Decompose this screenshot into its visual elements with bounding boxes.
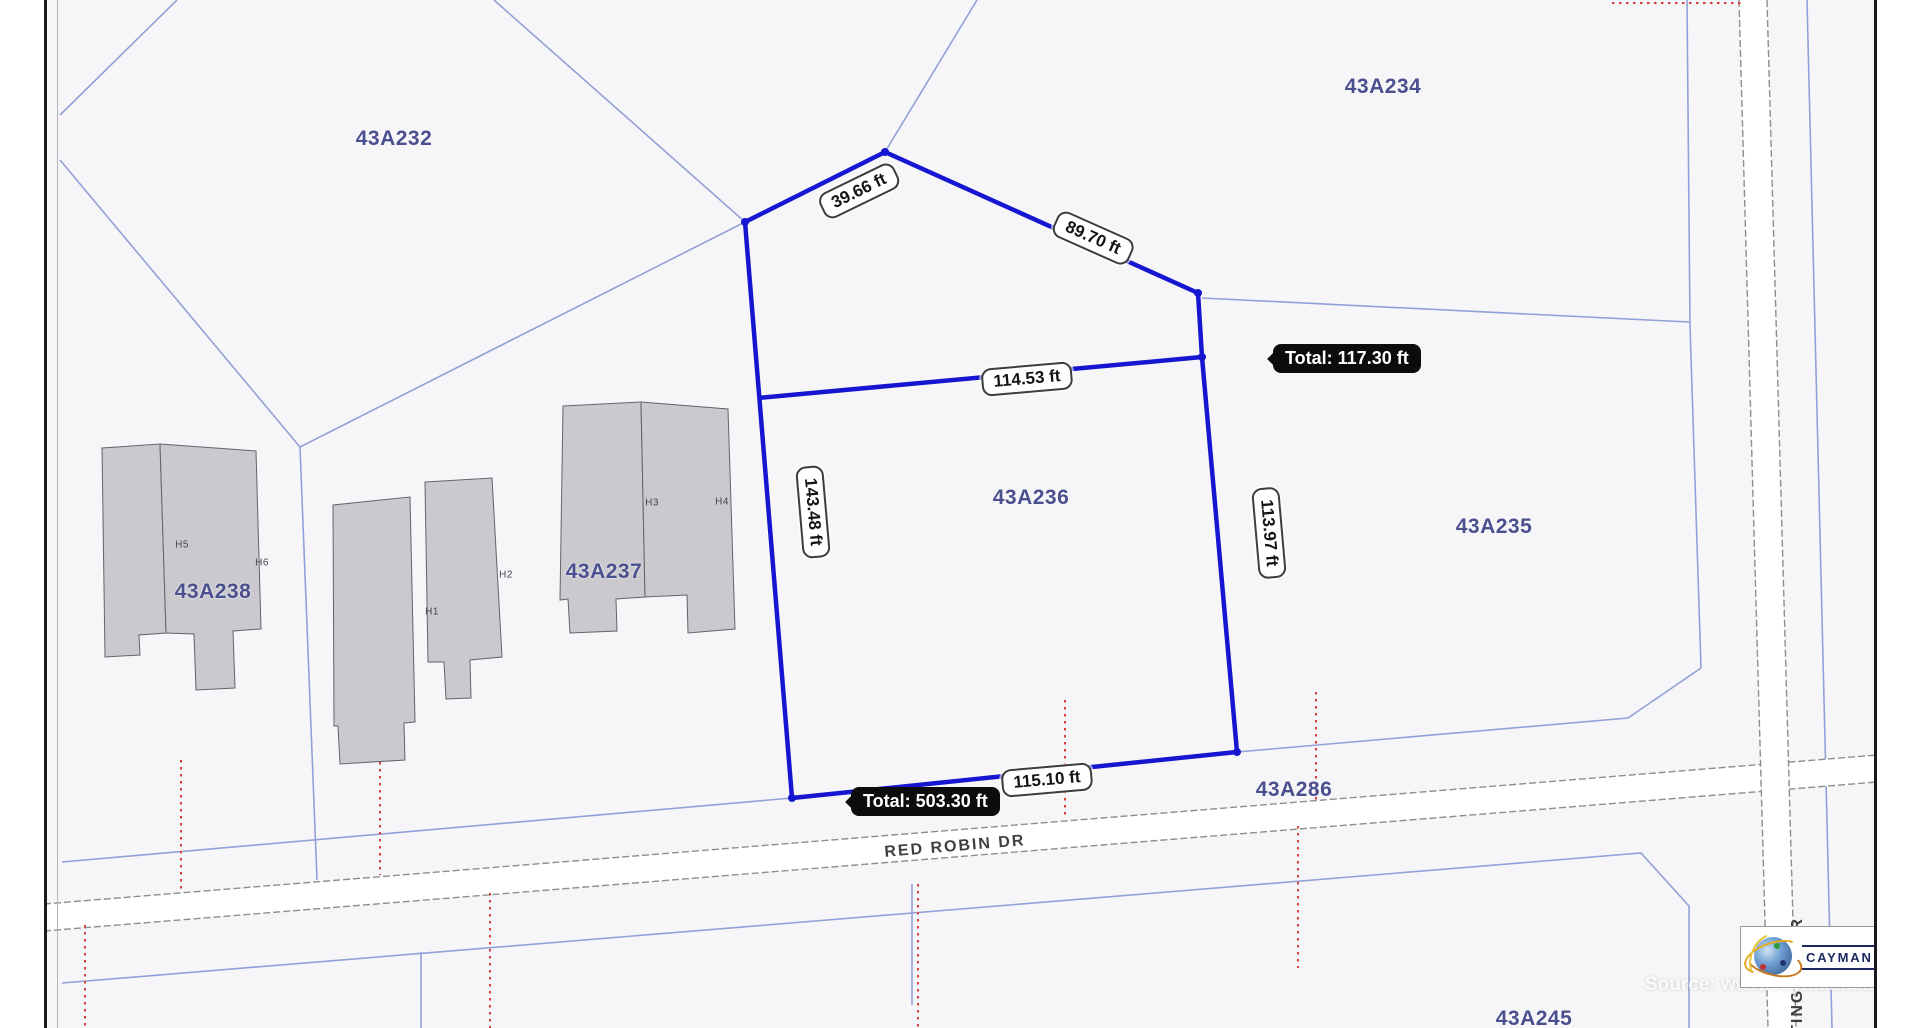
parcel-label-43A286: 43A286 [1256,778,1333,802]
building-label-h5: H5 [175,540,189,551]
total-callout-503-30: Total: 503.30 ft [851,787,1000,816]
road-nightingale-dr [1739,0,1796,1028]
map-border-right [1874,0,1877,1028]
parcel-label-43A235: 43A235 [1456,515,1533,539]
parcel-label-43A245: 43A245 [1496,1007,1573,1028]
cadastral-map-viewer: { "parcels": [ {"id": "43A232"}, {"id": … [0,0,1920,1028]
parcel-label-43A238: 43A238 [175,580,252,604]
parcel-label-43A236: 43A236 [993,486,1070,510]
parcel-label-43A232: 43A232 [356,127,433,151]
map-border-left [44,0,47,1028]
building-label-h6: H6 [255,558,269,569]
parcel-label-43A237: 43A237 [566,560,643,584]
cayman-land-info-logo: CAYMAN LAND INFO [1740,926,1874,988]
total-callout-117-30: Total: 117.30 ft [1273,344,1421,373]
map-area: 43A232 43A234 43A235 43A236 43A237 43A23… [47,0,1874,1028]
map-inner-border-left [57,0,58,1028]
building-label-h3: H3 [645,498,659,509]
building-label-h4: H4 [715,497,729,508]
globe-icon [1744,930,1798,984]
map-canvas[interactable] [47,0,1874,1028]
building-label-h2: H2 [499,570,513,581]
logo-text: CAYMAN LAND INFO [1802,945,1874,970]
building-label-h1: H1 [425,607,439,618]
parcel-boundary-lines [60,0,1832,1028]
parcel-label-43A234: 43A234 [1345,75,1422,99]
